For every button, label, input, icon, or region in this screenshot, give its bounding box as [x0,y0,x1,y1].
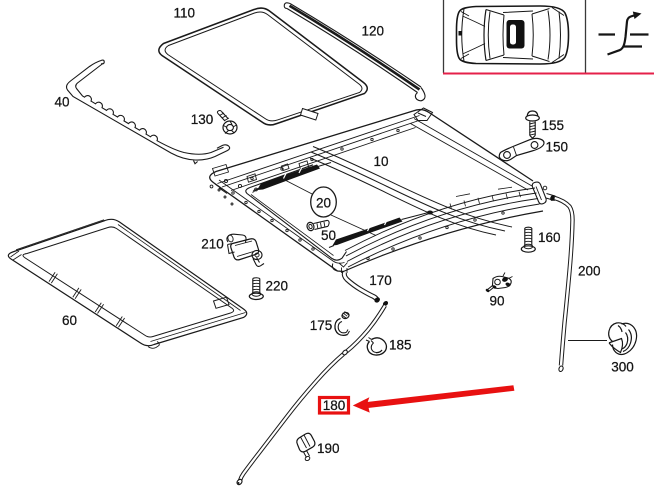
svg-text:90: 90 [489,294,504,309]
svg-text:60: 60 [62,313,77,328]
svg-text:200: 200 [578,264,601,279]
svg-text:130: 130 [191,112,214,127]
svg-text:20: 20 [316,196,331,211]
svg-text:210: 210 [201,237,224,252]
svg-text:170: 170 [369,273,392,288]
svg-text:180: 180 [323,398,346,413]
svg-text:300: 300 [611,360,634,375]
svg-text:50: 50 [321,228,336,243]
svg-text:160: 160 [538,230,561,245]
svg-text:40: 40 [54,95,69,110]
svg-text:120: 120 [362,24,385,39]
svg-text:10: 10 [373,154,388,169]
svg-text:220: 220 [266,279,289,294]
svg-text:185: 185 [389,338,412,353]
svg-text:155: 155 [542,118,565,133]
svg-text:150: 150 [546,140,569,155]
svg-text:190: 190 [317,441,340,456]
svg-text:110: 110 [174,6,196,21]
svg-text:175: 175 [310,318,333,333]
